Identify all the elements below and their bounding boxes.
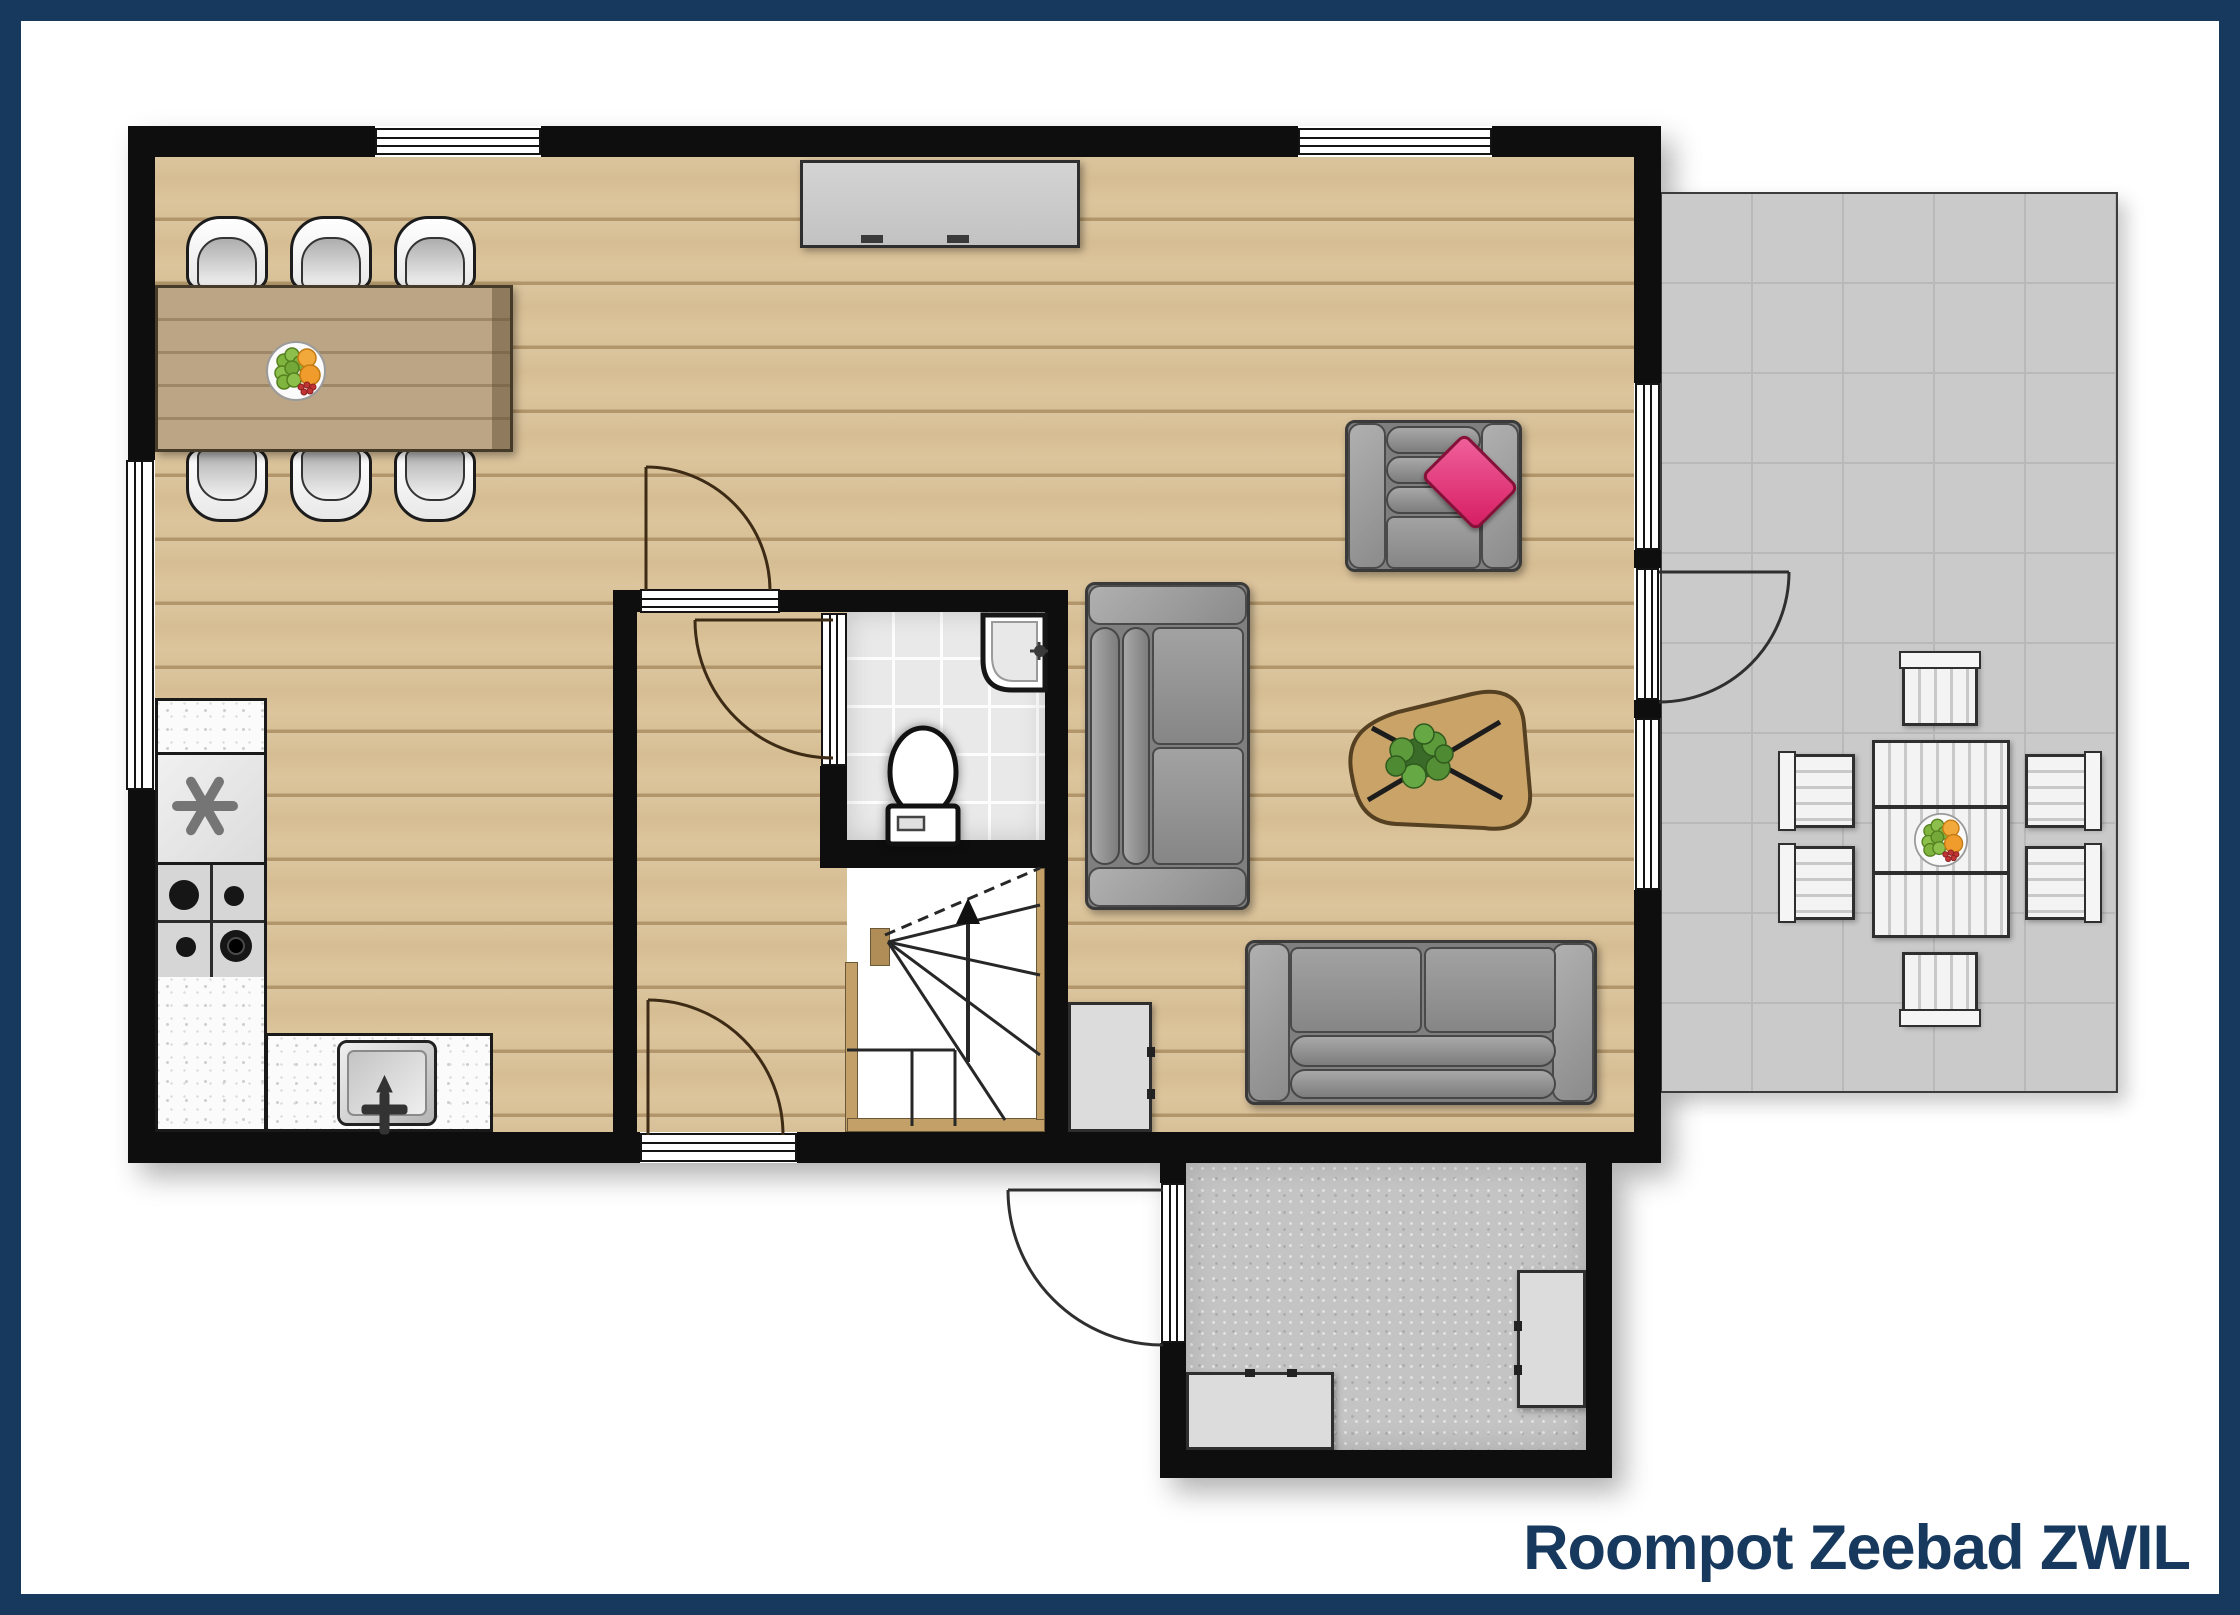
stairs-floor: [847, 868, 1045, 1132]
sofa-seat-cushion: [1424, 947, 1556, 1033]
chair-backbar: [2084, 843, 2102, 923]
sofa-armrest-right: [1552, 943, 1594, 1102]
hall-cabinet-side: [1517, 1270, 1586, 1408]
chair-backbar: [1778, 751, 1796, 831]
chair-seat: [197, 449, 257, 501]
front-door-swing: [1008, 1190, 1163, 1345]
cabinet-hinge: [1287, 1369, 1297, 1377]
armchair-armrest-left: [1348, 423, 1386, 569]
sofa-back-tube: [1090, 627, 1120, 865]
hall-wall-right: [1586, 1163, 1612, 1450]
window-top-dining: [375, 128, 541, 155]
hall-wall-left: [1160, 1163, 1186, 1183]
wall-top: [128, 126, 375, 157]
wall-bathroom-right: [1045, 612, 1068, 1132]
chair-backbar: [1899, 1009, 1981, 1027]
wall-left: [128, 126, 155, 460]
wall-left: [128, 790, 155, 1163]
dining-chair: [186, 448, 268, 522]
sink-basin: [347, 1050, 427, 1116]
kitchen-counter: [155, 977, 267, 1132]
hob-grid-h: [158, 920, 264, 923]
wall-bottom: [128, 1132, 640, 1163]
chair-seat: [405, 449, 465, 501]
terrace-chair-top: [1902, 652, 1978, 726]
chair-backbar: [2084, 751, 2102, 831]
wall-right: [1634, 700, 1661, 718]
terrace-chair-right: [2025, 754, 2101, 828]
sofa-back-tube: [1290, 1069, 1556, 1099]
kitchen-sink: [337, 1040, 437, 1126]
wall-bathroom-bottom: [820, 840, 1068, 868]
table-divider: [1875, 871, 2007, 875]
window-right-lower: [1635, 718, 1660, 890]
hall-wall-bottom: [1160, 1450, 1612, 1478]
sofa-back-tube: [1122, 627, 1150, 865]
front-door-frame: [1161, 1183, 1186, 1343]
window-right-upper: [1635, 383, 1660, 550]
sofa-seat-cushion: [1152, 627, 1244, 745]
table-divider: [1875, 805, 2007, 809]
terrace-chair-right: [2025, 846, 2101, 920]
window-left-dining: [126, 460, 154, 790]
wall-right: [1634, 890, 1661, 1163]
cabinet-hinge: [1245, 1369, 1255, 1377]
three-seat-sofa: [1245, 940, 1597, 1105]
sideboard-handle: [947, 235, 969, 243]
sideboard-handle: [861, 235, 883, 243]
dining-chair: [290, 448, 372, 522]
sofa-seat-cushion: [1152, 747, 1244, 865]
wall-top: [541, 126, 1298, 157]
dining-chair: [186, 216, 268, 290]
two-seat-sofa: [1085, 582, 1250, 910]
terrace-table: [1872, 740, 2010, 938]
armchair-seat: [1386, 516, 1481, 569]
stair-stringer-right: [1036, 868, 1045, 1120]
terrace-door-frame: [1636, 568, 1659, 700]
wall-interior-vertical: [613, 590, 637, 1132]
wall-interior-horizontal: [613, 590, 640, 612]
sofa-armrest-top: [1088, 585, 1247, 625]
floorplan-page: Roompot Zeebad ZWIL: [0, 0, 2240, 1615]
wall-interior-horizontal: [780, 590, 1068, 612]
kitchen-counter: [155, 698, 267, 755]
sofa-armrest-bottom: [1088, 867, 1247, 907]
fridge-freezer: [155, 752, 267, 865]
stair-newel: [870, 928, 890, 966]
living-cabinet: [1068, 1002, 1152, 1132]
chair-seat: [197, 237, 257, 289]
tv-sideboard: [800, 160, 1080, 248]
window-top-living: [1298, 128, 1492, 155]
terrace-chair-left: [1779, 846, 1855, 920]
cabinet-hinge: [1514, 1321, 1522, 1331]
page-title: Roompot Zeebad ZWIL: [1523, 1512, 2190, 1584]
dining-chair: [290, 216, 372, 290]
chair-seat: [301, 449, 361, 501]
terrace-chair-left: [1779, 754, 1855, 828]
gas-hob: [155, 862, 267, 980]
terrace-floor: [1660, 192, 2118, 1093]
dining-table: [155, 285, 513, 452]
dining-chair: [394, 216, 476, 290]
wall-right: [1634, 126, 1661, 383]
sofa-back-tube: [1290, 1035, 1556, 1067]
bathroom-floor: [847, 612, 1045, 840]
cabinet-hinge: [1147, 1089, 1155, 1099]
sofa-armrest-left: [1248, 943, 1290, 1102]
chair-seat: [301, 237, 361, 289]
wall-bottom: [797, 1132, 1661, 1163]
dining-chair: [394, 448, 476, 522]
stair-stringer-left: [845, 962, 858, 1132]
back-door-frame: [640, 1133, 797, 1162]
cabinet-hinge: [1147, 1047, 1155, 1057]
hall-cabinet-low: [1186, 1372, 1334, 1450]
cabinet-hinge: [1514, 1365, 1522, 1375]
table-edge: [492, 288, 510, 449]
bathroom-door-frame: [821, 613, 847, 766]
sofa-seat-cushion: [1290, 947, 1422, 1033]
wall-right: [1634, 550, 1661, 568]
chair-backbar: [1778, 843, 1796, 923]
chair-backbar: [1899, 651, 1981, 669]
stair-first-step: [847, 1118, 1045, 1132]
hallway-door-frame: [640, 589, 780, 613]
chair-seat: [405, 237, 465, 289]
terrace-chair-bottom: [1902, 952, 1978, 1026]
